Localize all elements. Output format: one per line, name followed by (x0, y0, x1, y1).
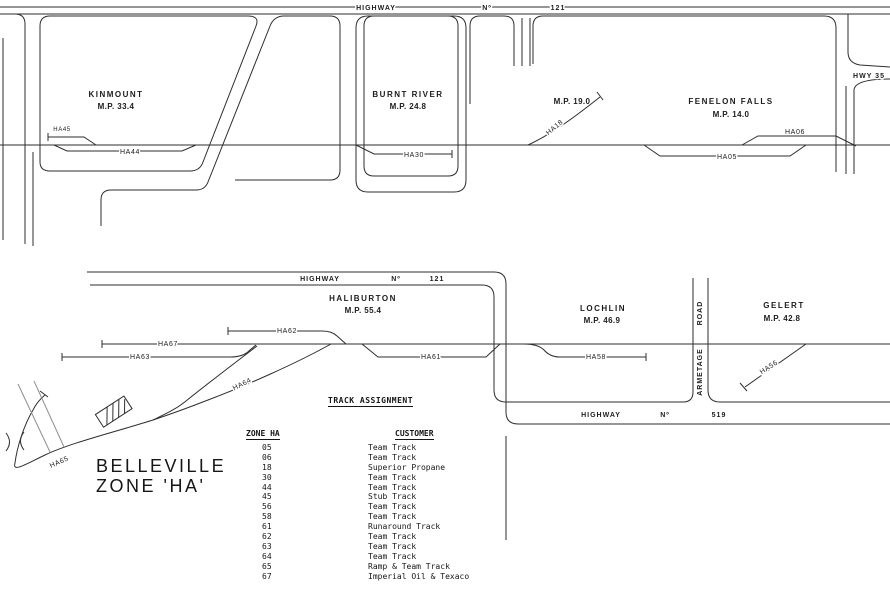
ha58-track (524, 344, 646, 357)
table-row: 44Team Track (246, 483, 526, 493)
highway-121-bottom-label-121: 121 (430, 276, 445, 283)
table-row: 56Team Track (246, 502, 526, 512)
track-label-ha18: HA18 (545, 119, 565, 137)
kinmount-block-outline (40, 16, 257, 171)
table-row: 62Team Track (246, 532, 526, 542)
track-label-ha56: HA56 (759, 359, 780, 376)
bridge-symbol-right (21, 432, 25, 450)
table-header-customer: CUSTOMER (395, 429, 434, 440)
crossing-road-line-1 (18, 384, 50, 452)
track-label-ha65: HA65 (49, 455, 70, 469)
customer-cell: Team Track (368, 443, 416, 453)
milepost-gelert: M.P. 42.8 (764, 314, 801, 323)
highway-519-label-highway: HIGHWAY (581, 412, 621, 419)
zone-cell: 56 (262, 502, 282, 512)
table-header-zone: ZONE HA (246, 429, 280, 440)
zone-cell: 05 (262, 443, 282, 453)
bridge-symbol-left (6, 433, 10, 451)
table-row: 65Ramp & Team Track (246, 562, 526, 572)
track-label-ha05: HA05 (717, 154, 737, 161)
track-label-ha45: HA45 (53, 127, 70, 133)
track-label-ha30: HA30 (404, 152, 424, 159)
table-row: 45Stub Track (246, 492, 526, 502)
milepost-burnt-river: M.P. 24.8 (390, 102, 427, 111)
track-label-ha06: HA06 (785, 129, 805, 136)
table-row: 61Runaround Track (246, 522, 526, 532)
customer-cell: Team Track (368, 542, 416, 552)
crossing-road-line-2 (34, 381, 64, 447)
zone-cell: 61 (262, 522, 282, 532)
ha45-spur-track (48, 137, 96, 145)
track-label-ha58: HA58 (586, 354, 606, 361)
table-row: 64Team Track (246, 552, 526, 562)
zone-title-line2: ZONE 'HA' (96, 476, 226, 496)
zone-cell: 06 (262, 453, 282, 463)
station-gelert: GELERT (763, 301, 804, 310)
table-row: 58Team Track (246, 512, 526, 522)
milepost-lochlin: M.P. 46.9 (584, 316, 621, 325)
armetage-road-label-road: ROAD (697, 301, 704, 326)
fenelon-block-outline (533, 16, 836, 172)
zone-title: BELLEVILLE ZONE 'HA' (96, 456, 226, 496)
no-block-outline (470, 16, 514, 104)
table-row: 30Team Track (246, 473, 526, 483)
track-label-ha62: HA62 (277, 328, 297, 335)
hwy35-east-side (854, 79, 890, 174)
zone-cell: 30 (262, 473, 282, 483)
station-kinmount: KINMOUNT (88, 90, 143, 99)
customer-cell: Team Track (368, 502, 416, 512)
track-label-ha44: HA44 (120, 149, 140, 156)
table-row: 18Superior Propane (246, 463, 526, 473)
kinmount-outer-road-contour (101, 16, 340, 226)
track-label-ha61: HA61 (421, 354, 441, 361)
zone-cell: 65 (262, 562, 282, 572)
table-row: 05Team Track (246, 443, 526, 453)
table-title: TRACK ASSIGNMENT (328, 396, 413, 407)
track-diagram: HIGHWAY Nº 121 HWY 35 HIGHWAY Nº 121 HIG… (0, 0, 890, 592)
zone-cell: 58 (262, 512, 282, 522)
customer-cell: Team Track (368, 473, 416, 483)
station-labels: KINMOUNT M.P. 33.4 BURNT RIVER M.P. 24.8… (88, 90, 804, 325)
milepost-ha18-site: M.P. 19.0 (554, 97, 591, 106)
table-row: 67Imperial Oil & Texaco (246, 572, 526, 582)
customer-cell: Stub Track (368, 492, 416, 502)
customer-cell: Team Track (368, 552, 416, 562)
highway-121-top-label-no: Nº (482, 5, 492, 12)
table-row: 06Team Track (246, 453, 526, 463)
zone-cell: 45 (262, 492, 282, 502)
zone-cell: 62 (262, 532, 282, 542)
customer-cell: Runaround Track (368, 522, 440, 532)
milepost-haliburton: M.P. 55.4 (345, 306, 382, 315)
zone-cell: 67 (262, 572, 282, 582)
milepost-fenelon-falls: M.P. 14.0 (713, 110, 750, 119)
highway-121-top-label-highway: HIGHWAY (356, 5, 396, 12)
highway-121-top-label-121: 121 (551, 5, 566, 12)
zone-cell: 63 (262, 542, 282, 552)
building-hatched (95, 396, 132, 427)
track-label-ha64: HA64 (232, 377, 253, 392)
customer-cell: Team Track (368, 512, 416, 522)
table-row: 63Team Track (246, 542, 526, 552)
station-haliburton: HALIBURTON (329, 294, 397, 303)
track-label-ha63: HA63 (130, 354, 150, 361)
armetage-road-label-armetage: ARMETAGE (697, 348, 704, 396)
station-fenelon-falls: FENELON FALLS (688, 97, 773, 106)
zone-cell: 18 (262, 463, 282, 473)
hwy35-upper-curve (848, 14, 890, 67)
station-burnt-river: BURNT RIVER (372, 90, 443, 99)
armetage-east-519-upper-east (708, 278, 890, 402)
zone-title-line1: BELLEVILLE (96, 456, 226, 476)
ha56-end-tick (740, 383, 747, 391)
highway-519-label-no: Nº (660, 412, 670, 419)
customer-cell: Imperial Oil & Texaco (368, 572, 469, 582)
milepost-kinmount: M.P. 33.4 (98, 102, 135, 111)
highway-121-bottom-label-highway: HIGHWAY (300, 276, 340, 283)
customer-cell: Superior Propane (368, 463, 445, 473)
zone-cell: 64 (262, 552, 282, 562)
table-headers: ZONE HA CUSTOMER (246, 429, 526, 443)
customer-cell: Ramp & Team Track (368, 562, 450, 572)
highway-121-bottom-label-no: Nº (391, 276, 401, 283)
customer-cell: Team Track (368, 532, 416, 542)
table-rows: 05Team Track 06Team Track 18Superior Pro… (246, 443, 526, 581)
customer-cell: Team Track (368, 453, 416, 463)
station-lochlin: LOCHLIN (580, 304, 626, 313)
left-road-east-side (15, 14, 25, 244)
track-assignment-table: TRACK ASSIGNMENT ZONE HA CUSTOMER 05Team… (246, 396, 526, 581)
hwy-35-label: HWY 35 (853, 73, 885, 80)
track-label-ha67: HA67 (158, 341, 178, 348)
zone-cell: 44 (262, 483, 282, 493)
customer-cell: Team Track (368, 483, 416, 493)
highway-519-label-519: 519 (712, 412, 727, 419)
roads-top (0, 7, 890, 246)
